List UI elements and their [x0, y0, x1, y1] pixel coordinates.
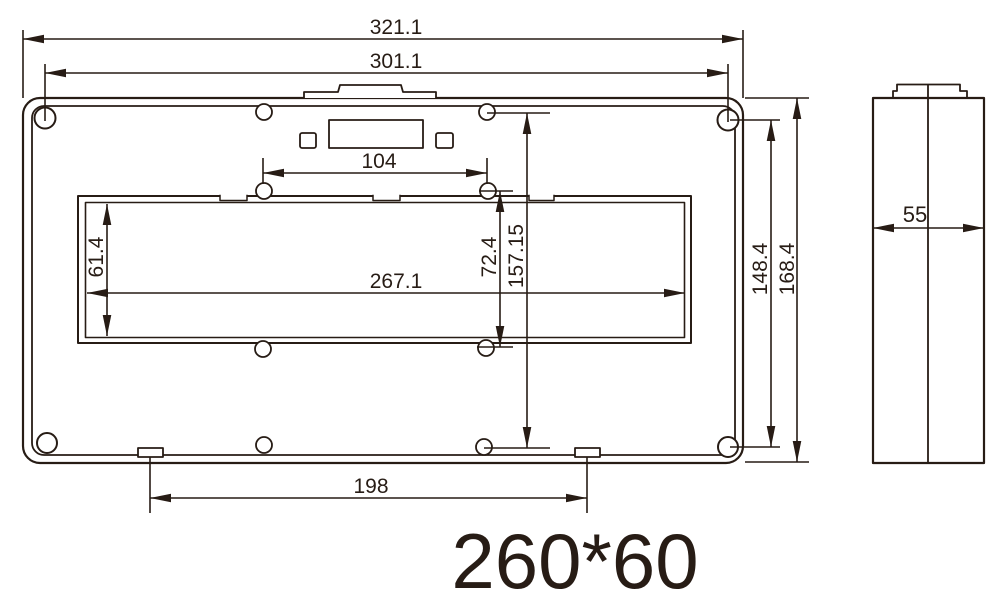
bottom-tab-left — [138, 448, 163, 457]
dim-label-panel-hole-spacing-v: 157.15 — [505, 224, 528, 288]
notch-mask — [529, 195, 554, 201]
dim-label-overall-height: 168.4 — [776, 242, 799, 295]
arrowhead — [793, 98, 802, 119]
screw-hole — [255, 341, 271, 357]
dim-label-mount-hole-height: 148.4 — [749, 242, 772, 295]
side-view-top-tab — [893, 85, 967, 99]
arrowhead — [722, 35, 743, 44]
screw-hole — [476, 439, 492, 455]
arrowhead — [767, 426, 776, 447]
arrowhead — [707, 69, 728, 78]
dim-label-cutout-height: 61.4 — [85, 236, 108, 277]
arrowhead — [767, 120, 776, 141]
dim-label-overall-width: 321.1 — [370, 16, 423, 39]
technical-drawing-canvas: 321.1 301.1 104 267.1 61.4 72.4 157.15 1… — [0, 0, 1000, 601]
arrowhead — [566, 494, 587, 503]
screw-hole — [256, 183, 272, 199]
arrowhead — [45, 69, 66, 78]
dim-label-cutout-hole-spacing-v: 72.4 — [478, 236, 501, 277]
notch-mask — [220, 195, 247, 201]
mounting-hole — [37, 433, 57, 453]
screw-hole — [478, 340, 494, 356]
connector-screw-square-left — [300, 133, 316, 148]
panel-cutout-size-note: 260*60 — [451, 517, 698, 601]
enclosure-dimension-drawing: 321.1 301.1 104 267.1 61.4 72.4 157.15 1… — [0, 0, 1000, 601]
dim-label-bottom-tab-spacing: 198 — [353, 475, 388, 498]
bottom-tab-right — [575, 448, 600, 457]
arrowhead — [150, 494, 171, 503]
part-outlines — [23, 85, 984, 464]
screw-hole — [479, 104, 495, 120]
screw-hole — [256, 437, 272, 453]
front-top-tab — [304, 85, 436, 98]
arrowhead — [793, 441, 802, 462]
notch-mask — [373, 195, 400, 201]
connector-screw-square-right — [436, 133, 453, 148]
screw-hole — [256, 104, 272, 120]
arrowhead — [23, 35, 44, 44]
dim-label-mount-hole-width: 301.1 — [370, 50, 423, 73]
connector-window — [329, 120, 423, 148]
dim-label-cutout-width: 267.1 — [370, 270, 423, 293]
dim-label-depth: 55 — [903, 202, 927, 227]
dim-label-top-hole-spacing: 104 — [361, 150, 396, 173]
